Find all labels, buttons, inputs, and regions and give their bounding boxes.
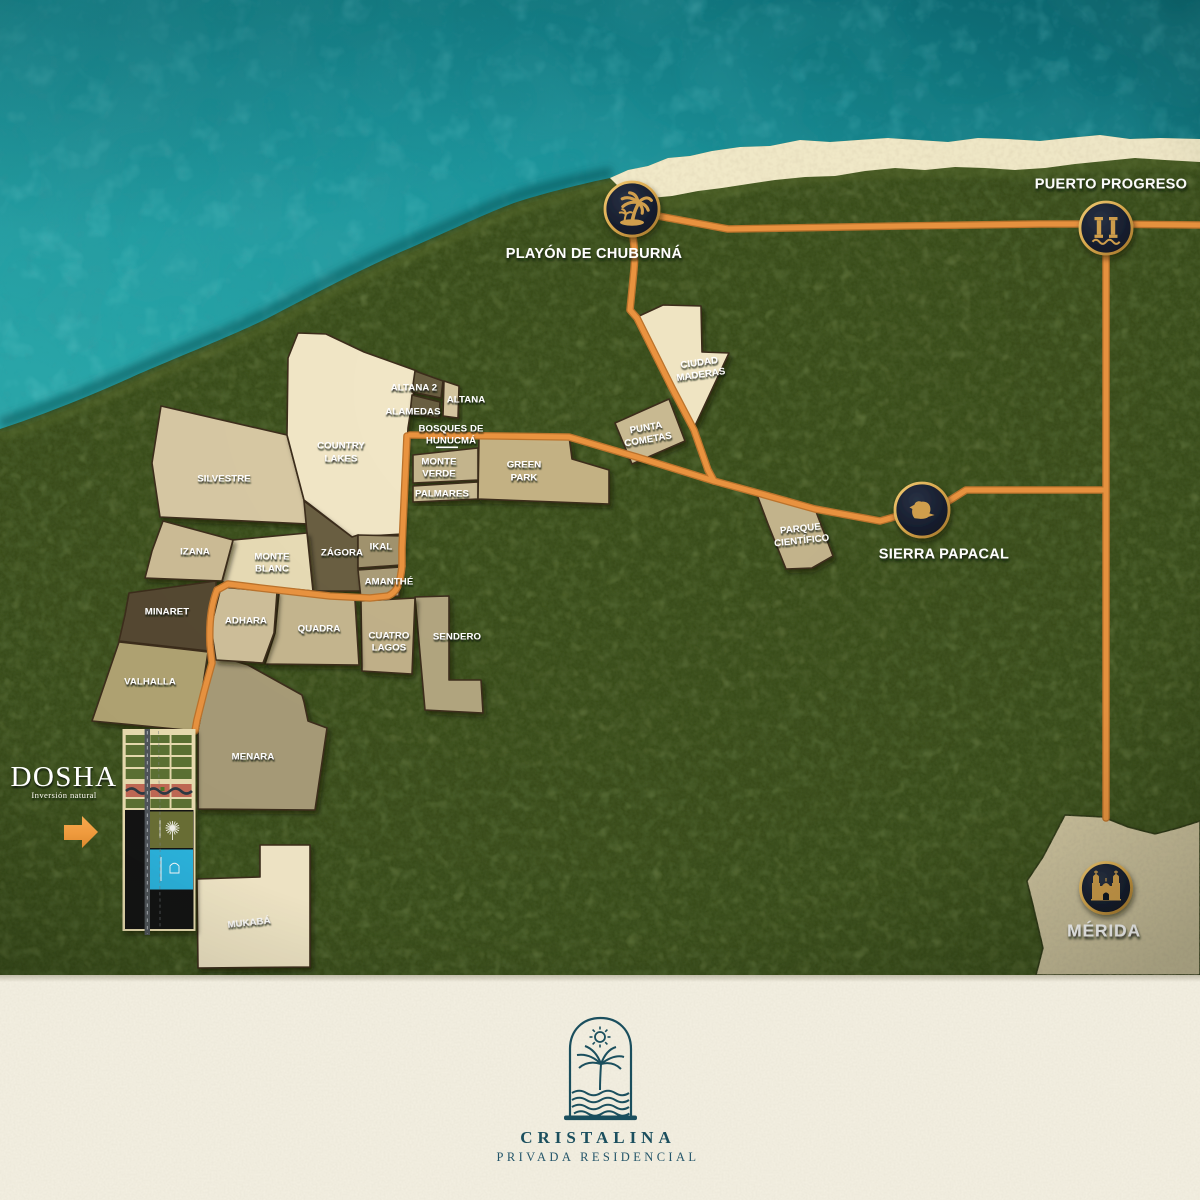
svg-text:CRISTALINA: CRISTALINA bbox=[520, 1128, 676, 1147]
svg-text:PRIVADA RESIDENCIAL: PRIVADA RESIDENCIAL bbox=[497, 1150, 700, 1164]
svg-text:DOSHA: DOSHA bbox=[11, 761, 118, 793]
svg-text:Inversión natural: Inversión natural bbox=[31, 790, 96, 800]
